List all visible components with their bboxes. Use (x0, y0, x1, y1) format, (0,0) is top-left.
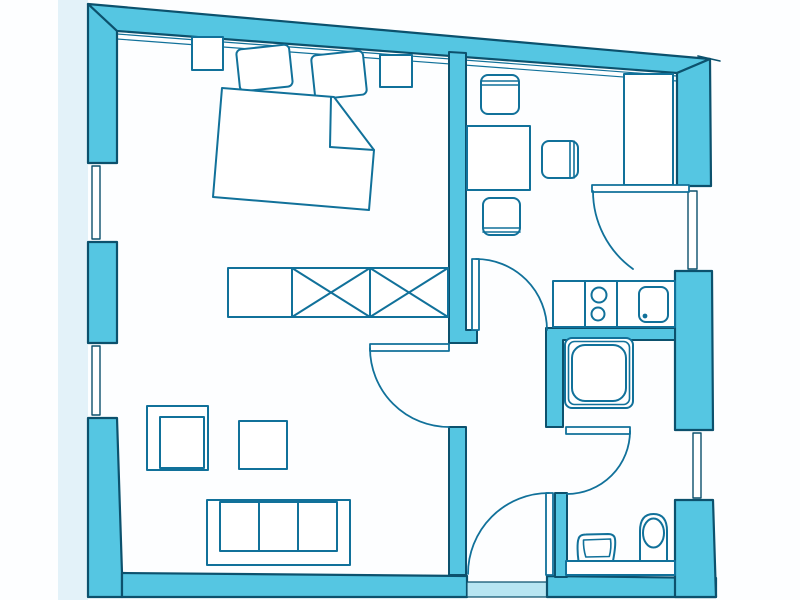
wardrobe (228, 268, 448, 317)
living-room-door-swing-arc (370, 348, 449, 427)
tall-cupboard (624, 74, 673, 185)
bed-pillow-right (311, 50, 367, 99)
cooktop-burner-1 (592, 288, 607, 303)
bottom-wall-left (122, 573, 467, 597)
bed-blanket-fold-vertical-line (330, 97, 331, 147)
sofa-seat (220, 502, 337, 551)
bathroom-door-swing-arc (567, 431, 630, 494)
left-wall-upper (88, 4, 117, 163)
chair-east (542, 141, 578, 178)
right-wall-upper (677, 59, 711, 186)
living-room-door-leaf (370, 344, 449, 351)
entrance-door-swing-arc (468, 493, 549, 574)
balcony-door-swing-arc (593, 191, 633, 269)
chair-south (483, 198, 520, 235)
entrance-threshold (467, 582, 547, 597)
right-wall-lower (675, 500, 716, 597)
left-wall-mid (88, 242, 117, 343)
window-left-upper-glazing (92, 166, 100, 239)
balcony-door-glazing (688, 191, 697, 269)
dining-table (467, 126, 530, 190)
wall-living-hall (449, 427, 466, 575)
kitchen-sink-drain-dot (643, 314, 648, 319)
floor-plan-svg (0, 0, 800, 600)
floor-plan (0, 0, 800, 600)
toilet-bowl (643, 519, 664, 548)
coffee-table (239, 421, 287, 469)
window-left-lower-glazing (92, 346, 100, 415)
kitchen-door-leaf (472, 259, 479, 330)
bathroom-door-leaf (566, 427, 630, 434)
armchair-seat (160, 417, 204, 468)
kitchen-door-swing-arc (476, 259, 547, 330)
right-wall-mid (675, 271, 713, 430)
bathroom-shelf (566, 561, 675, 575)
cooktop-burner-2 (592, 308, 605, 321)
nightstand-left (192, 37, 223, 70)
bed-pillow-left (236, 44, 293, 91)
window-right-glazing (693, 433, 701, 498)
balcony-door-leaf (592, 185, 689, 192)
entrance-door-leaf (546, 493, 553, 575)
scan-margin-tint (58, 0, 88, 600)
shower-floor (572, 345, 626, 401)
nightstand-right (380, 55, 412, 87)
left-wall-lower (88, 418, 122, 597)
